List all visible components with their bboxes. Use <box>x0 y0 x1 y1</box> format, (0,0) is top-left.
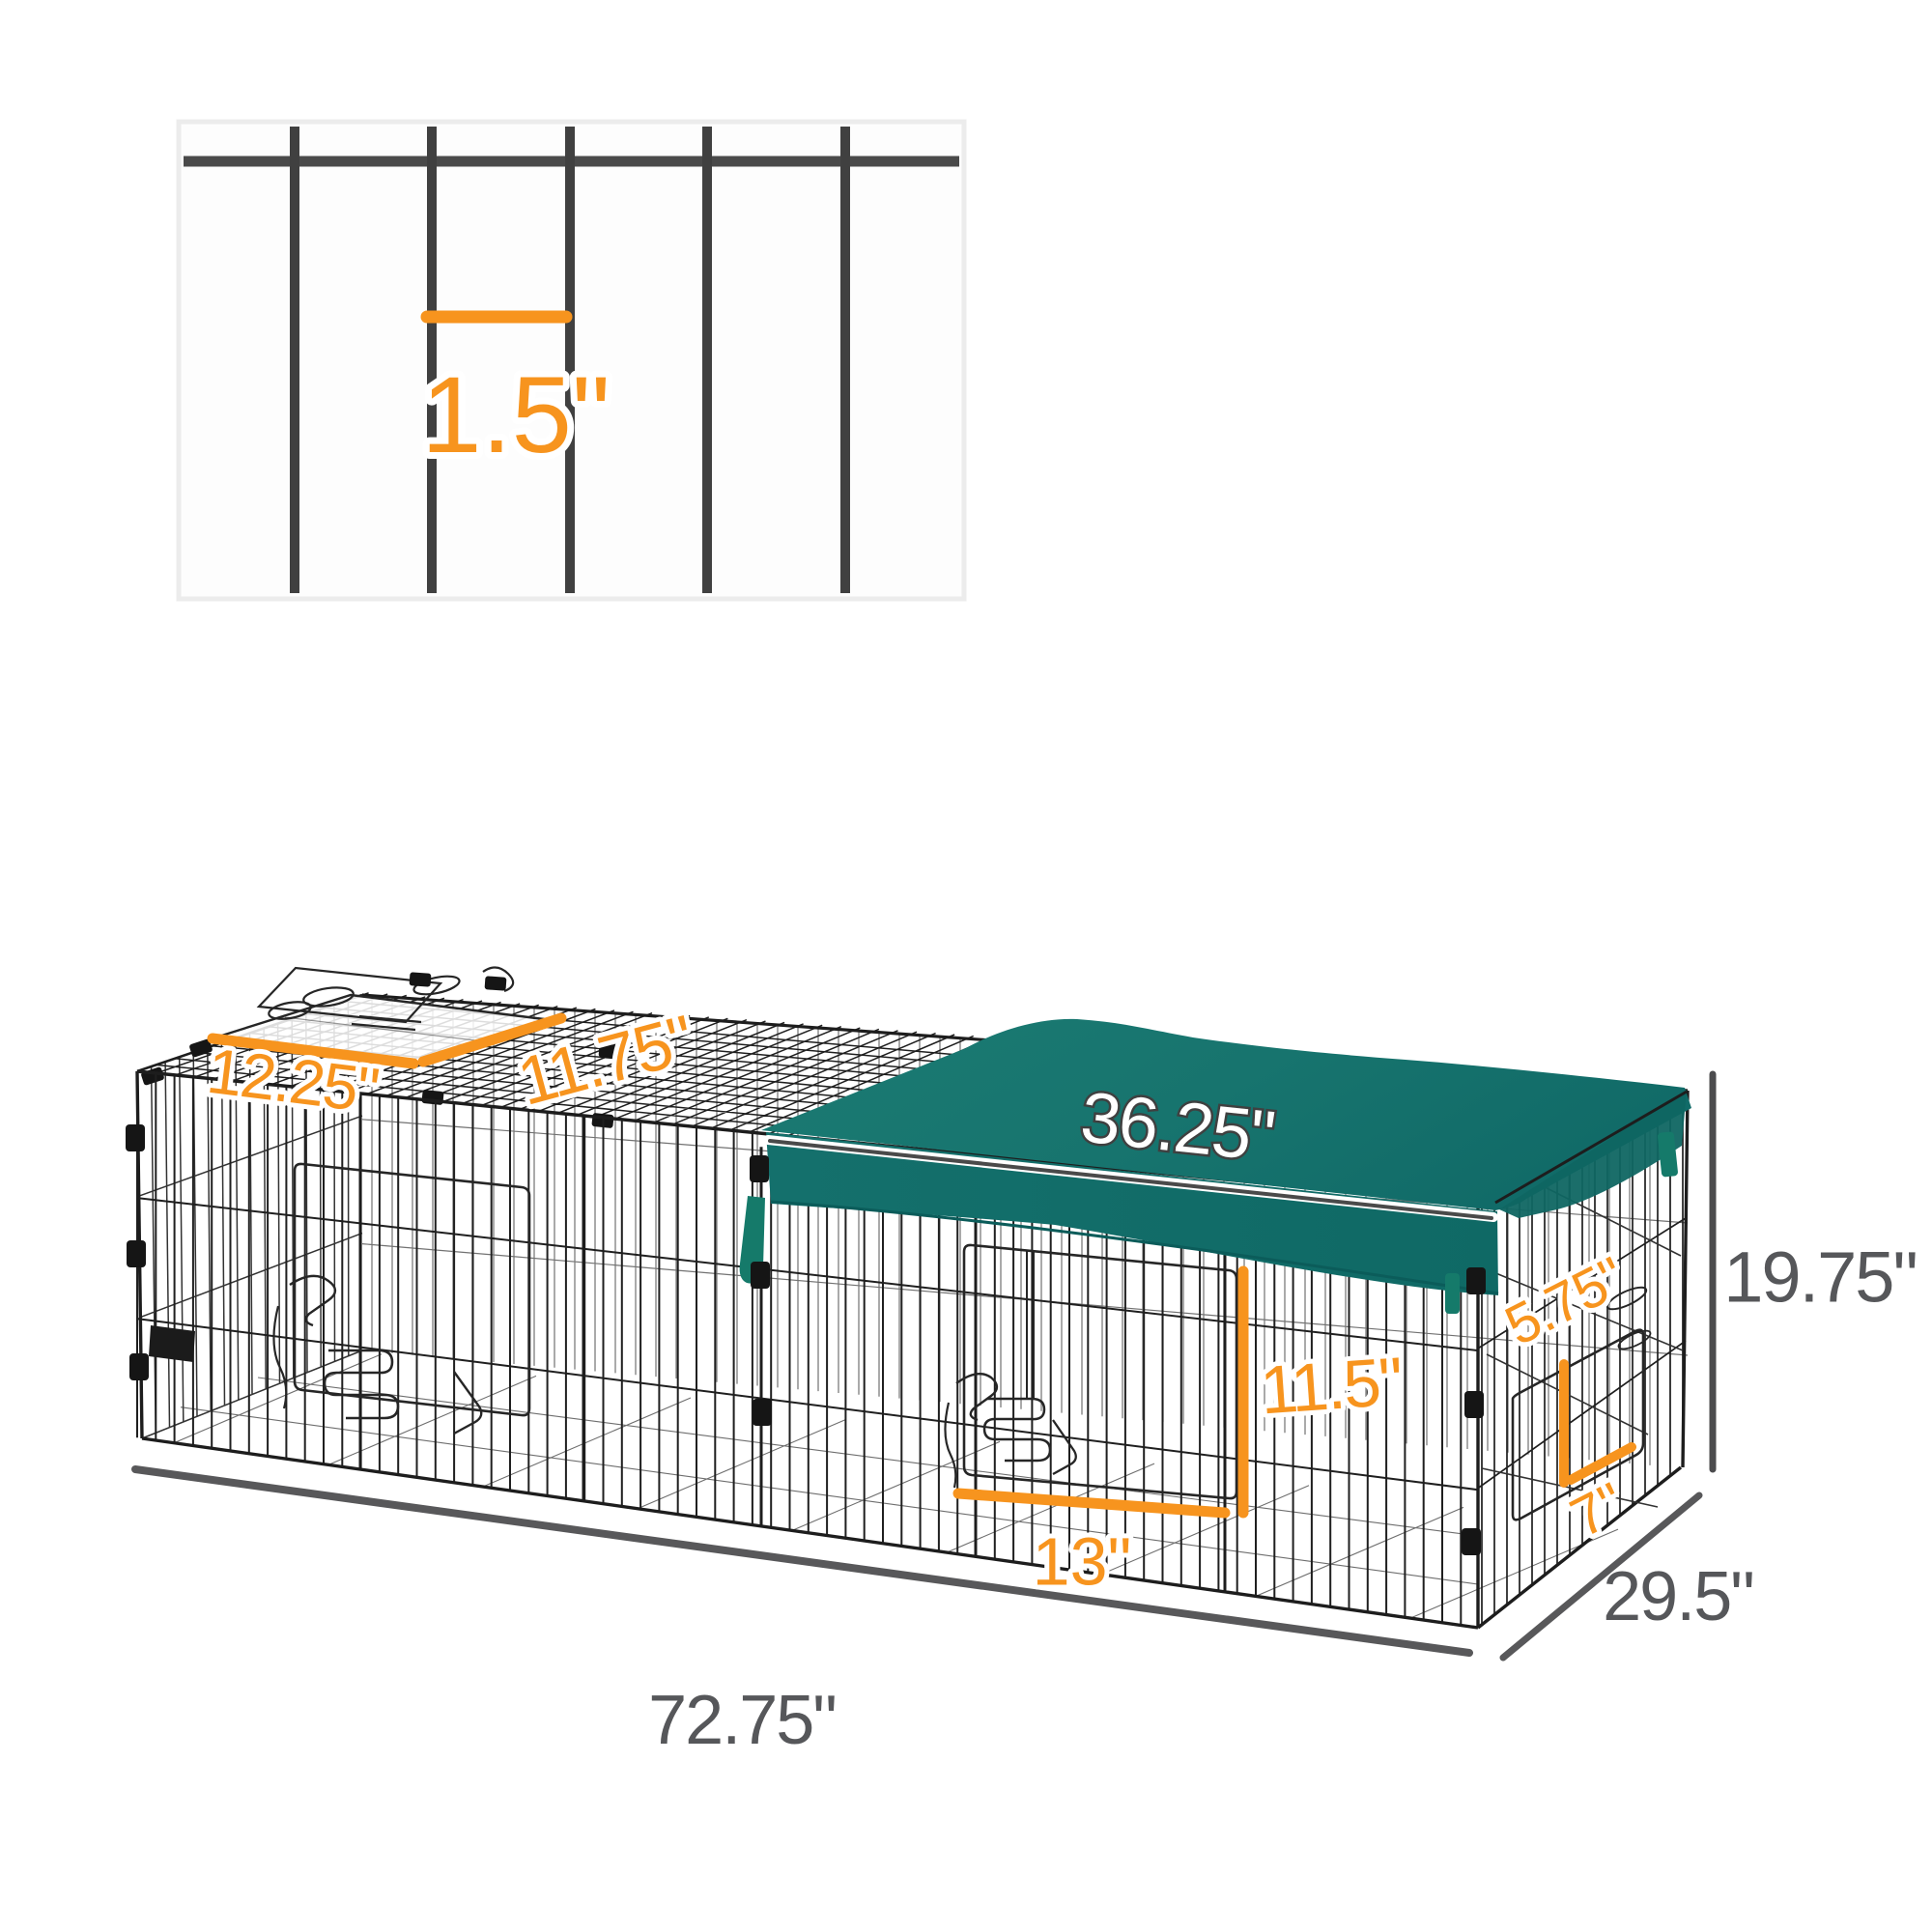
svg-text:29.5": 29.5" <box>1603 1558 1753 1635</box>
svg-text:13": 13" <box>1033 1523 1132 1599</box>
svg-text:1.5": 1.5" <box>421 355 610 475</box>
svg-text:72.75": 72.75" <box>648 1682 836 1759</box>
svg-text:19.75": 19.75" <box>1723 1237 1916 1318</box>
svg-text:11.5": 11.5" <box>1258 1344 1404 1429</box>
svg-text:5.75": 5.75" <box>1495 1245 1634 1357</box>
